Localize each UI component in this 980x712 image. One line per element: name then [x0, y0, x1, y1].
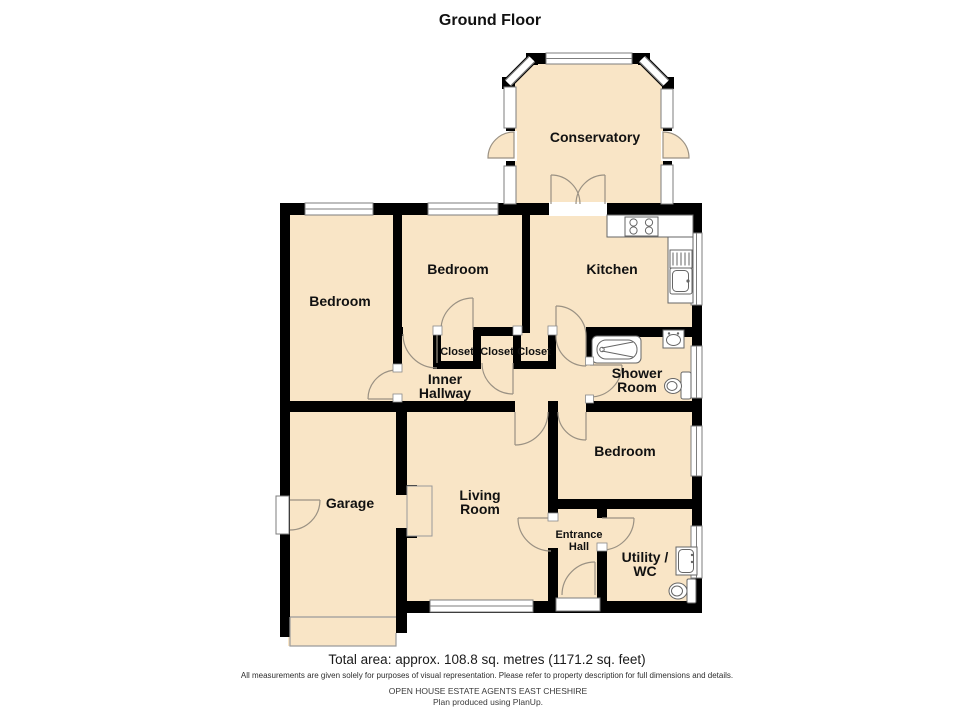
- disclaimer-text: All measurements are given solely for pu…: [241, 671, 733, 680]
- room-garage-extension: [288, 598, 396, 646]
- hand-basin-icon: [663, 330, 684, 348]
- label-garage: Garage: [326, 495, 374, 511]
- label-inner-hallway-2: Hallway: [419, 385, 471, 401]
- label-shower-room-2: Room: [617, 379, 657, 395]
- wall: [597, 509, 607, 518]
- window: [504, 166, 516, 204]
- utility-sink-icon: [676, 547, 697, 575]
- wall: [280, 203, 290, 637]
- door-swing: [488, 132, 514, 158]
- wall: [396, 401, 407, 485]
- label-closet-2: Closet: [480, 346, 514, 358]
- wall: [513, 361, 556, 369]
- door-jamb: [433, 326, 442, 335]
- window: [661, 165, 673, 204]
- label-closet-1: Closet: [440, 346, 474, 358]
- label-living-room-2: Room: [460, 501, 500, 517]
- garage-side-door-opening: [276, 496, 289, 534]
- chimney-recess: [407, 486, 432, 536]
- total-area-text: Total area: approx. 108.8 sq. metres (11…: [328, 652, 645, 667]
- bathtub-icon: [592, 336, 641, 363]
- door-jamb: [586, 395, 594, 403]
- door-jamb: [393, 394, 402, 402]
- door-jamb: [513, 326, 522, 335]
- wall: [396, 538, 407, 633]
- wall: [548, 499, 702, 509]
- wall: [393, 203, 402, 371]
- wall: [548, 401, 558, 515]
- wall: [522, 203, 530, 333]
- wall: [393, 327, 403, 336]
- floorplan-svg: Conservatory Kitchen Bedroom Bedroom Clo…: [0, 0, 980, 712]
- door-jamb: [548, 326, 557, 335]
- door-jamb: [597, 543, 607, 551]
- label-bedroom-1: Bedroom: [309, 293, 370, 309]
- door-jamb: [548, 513, 558, 521]
- hob-icon: [625, 217, 658, 236]
- label-bedroom-2: Bedroom: [427, 261, 488, 277]
- door-jamb: [393, 364, 402, 372]
- label-entrance-hall-2: Hall: [569, 541, 589, 553]
- window: [661, 89, 673, 128]
- label-closet-3: Closet: [517, 346, 551, 358]
- wall: [433, 361, 481, 369]
- window: [504, 87, 516, 128]
- label-bedroom-3: Bedroom: [594, 443, 655, 459]
- conservatory-rear-door-opening: [549, 202, 607, 216]
- label-kitchen: Kitchen: [586, 261, 637, 277]
- label-entrance-hall-1: Entrance: [555, 529, 602, 541]
- door-jamb: [586, 357, 594, 365]
- label-utility-wc-2: WC: [633, 563, 656, 579]
- produced-text: Plan produced using PlanUp.: [433, 697, 543, 707]
- wall: [586, 401, 702, 412]
- page-title: Ground Floor: [439, 12, 541, 29]
- front-door-threshold: [556, 598, 600, 611]
- door-swing: [663, 132, 689, 158]
- agent-text: OPEN HOUSE ESTATE AGENTS EAST CHESHIRE: [389, 686, 588, 696]
- label-conservatory: Conservatory: [550, 129, 640, 145]
- floorplan-page: Conservatory Kitchen Bedroom Bedroom Clo…: [0, 0, 980, 712]
- kitchen-sink-icon: [670, 250, 692, 294]
